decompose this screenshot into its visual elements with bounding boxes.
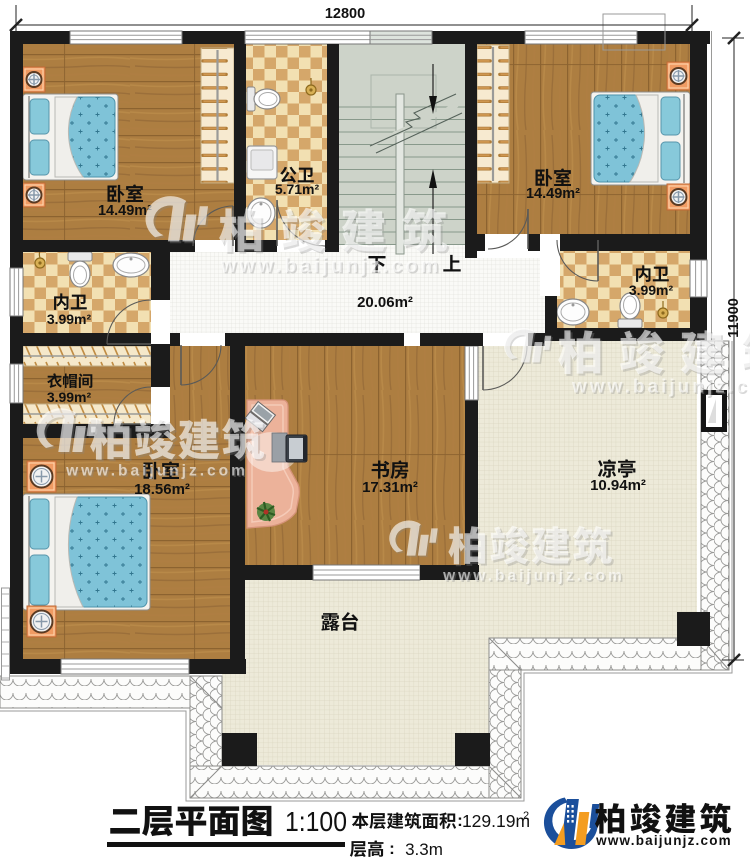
svg-text:18.56m²: 18.56m² [134, 481, 190, 498]
svg-text:5.71m²: 5.71m² [275, 181, 320, 197]
svg-text:14.49m²: 14.49m² [98, 203, 152, 219]
svg-text:3.99m²: 3.99m² [47, 311, 92, 327]
svg-text:www.baijunjz.com: www.baijunjz.com [571, 377, 750, 398]
svg-text:1:100: 1:100 [285, 806, 347, 837]
svg-text:www.baijunjz.com: www.baijunjz.com [65, 462, 248, 479]
svg-text:20.06m²: 20.06m² [357, 294, 413, 311]
svg-text:3.3m: 3.3m [405, 840, 443, 859]
svg-text:3.99m²: 3.99m² [629, 282, 674, 298]
svg-text:www.baijunjz.com: www.baijunjz.com [220, 255, 442, 277]
svg-text:3.99m²: 3.99m² [47, 389, 92, 405]
svg-text:17.31m²: 17.31m² [362, 479, 418, 496]
svg-text:www.baijunjz.com: www.baijunjz.com [442, 567, 625, 584]
svg-text:2: 2 [523, 810, 529, 822]
svg-text:www.baijunjz.com: www.baijunjz.com [595, 833, 732, 848]
svg-text:12800: 12800 [325, 6, 365, 22]
svg-text:14.49m²: 14.49m² [526, 186, 580, 202]
svg-text::: : [389, 839, 395, 858]
svg-text:129.19m: 129.19m [462, 811, 530, 831]
svg-text:11900: 11900 [726, 298, 742, 338]
svg-text:10.94m²: 10.94m² [590, 477, 646, 494]
